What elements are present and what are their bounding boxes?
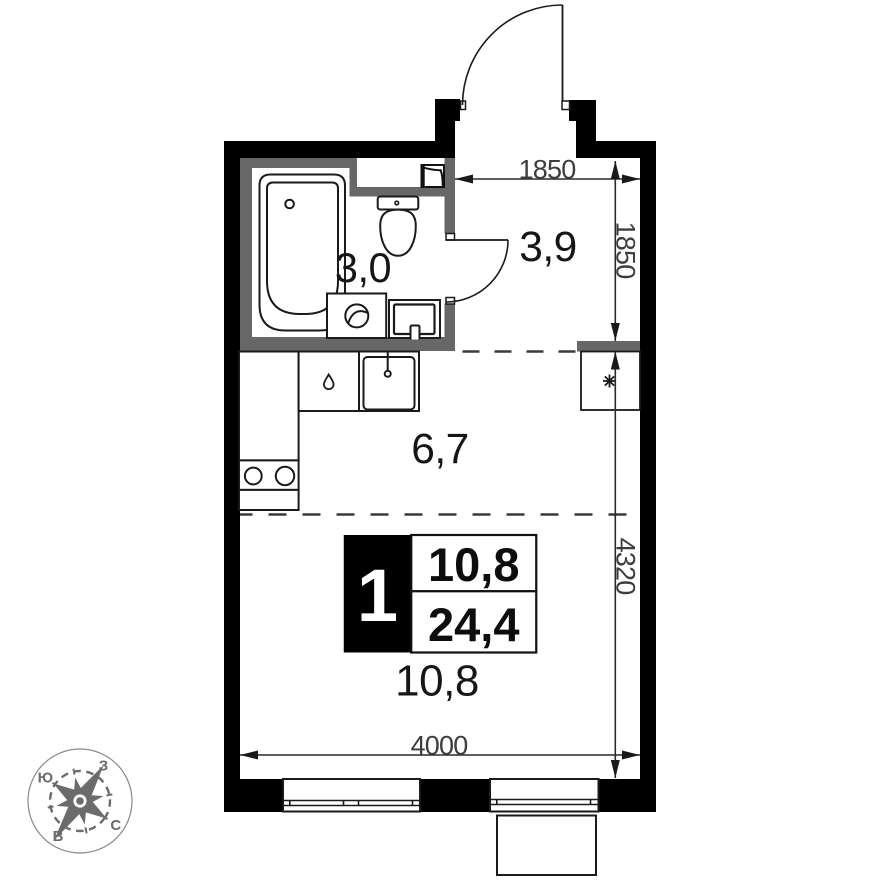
svg-text:24,4: 24,4: [428, 598, 519, 651]
svg-text:1850: 1850: [519, 155, 576, 185]
svg-text:Ю: Ю: [38, 769, 53, 786]
svg-text:3,0: 3,0: [335, 244, 391, 291]
svg-text:З: З: [99, 758, 108, 775]
svg-text:С: С: [110, 817, 121, 834]
svg-text:6,7: 6,7: [411, 426, 469, 473]
svg-text:10,8: 10,8: [428, 538, 519, 591]
svg-text:1850: 1850: [611, 222, 641, 279]
svg-text:4320: 4320: [611, 538, 641, 595]
svg-text:4000: 4000: [411, 731, 468, 761]
svg-text:1: 1: [357, 554, 398, 637]
svg-text:10,8: 10,8: [395, 657, 479, 706]
svg-text:3,9: 3,9: [519, 224, 577, 271]
svg-text:В: В: [53, 828, 64, 845]
